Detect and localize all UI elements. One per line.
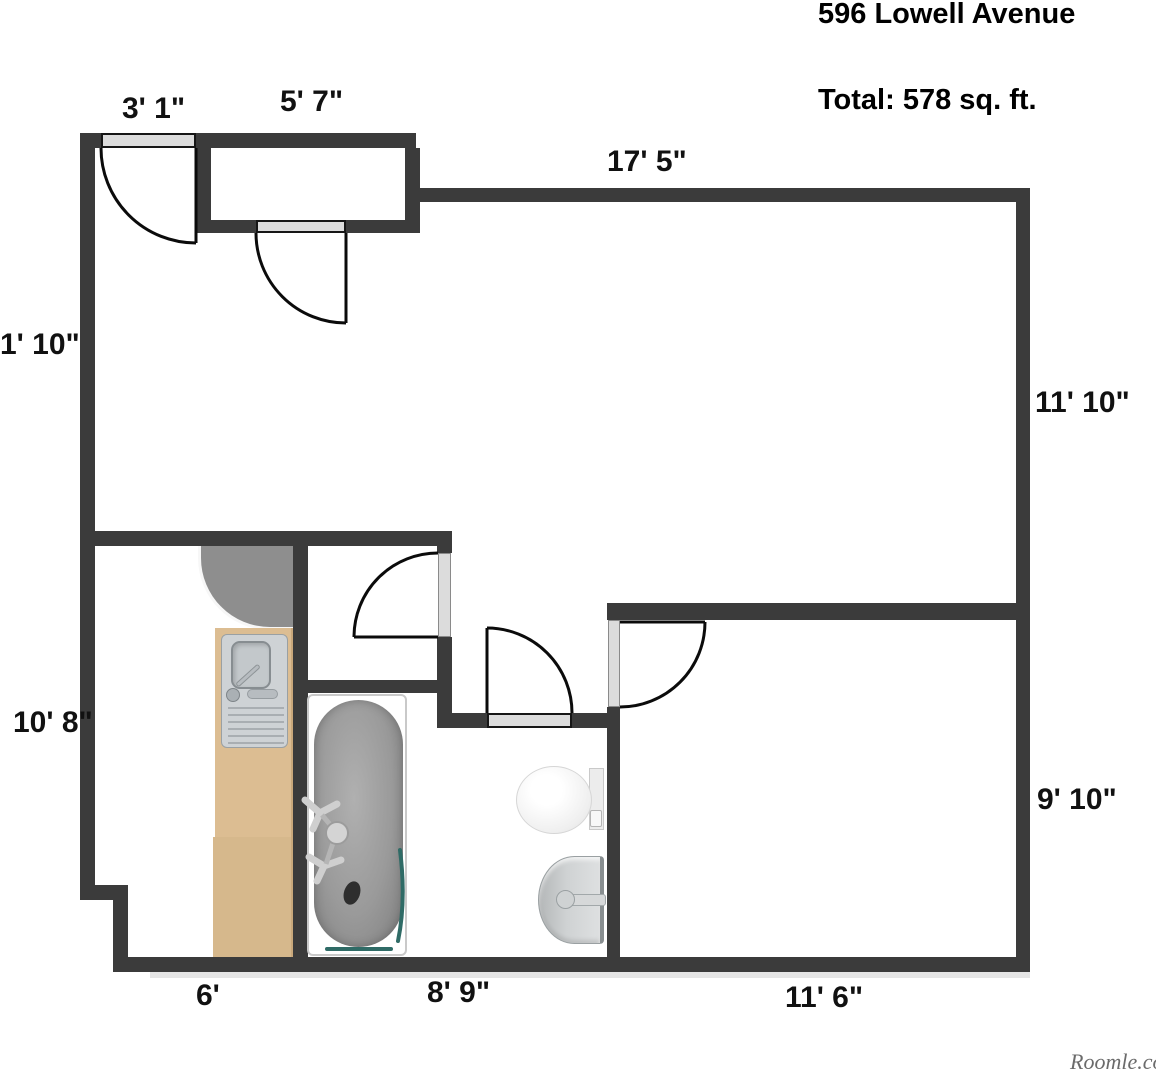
wall-left-jog-v	[113, 885, 128, 972]
entry-door-sill	[101, 133, 196, 148]
floor-plan: 596 Lowell Avenue Total: 578 sq. ft. 3' …	[0, 0, 1156, 1080]
wall-bath-top-a	[437, 713, 487, 728]
dim-entry-door: 3' 1"	[122, 92, 185, 126]
wall-bedroom-divider	[607, 603, 1030, 620]
dim-kitchen-left: 10' 8"	[13, 706, 93, 740]
hall-closet-sill	[438, 553, 451, 637]
bedroom-door	[620, 622, 705, 707]
dim-bedroom-right: 9' 10"	[1037, 783, 1117, 817]
wall-closet-bottom-a	[197, 220, 256, 233]
wall-kitchen-bath	[293, 546, 308, 957]
address-title: 596 Lowell Avenue	[818, 0, 1075, 31]
dim-bathroom-bottom: 8' 9"	[427, 976, 490, 1010]
bathtub	[314, 700, 403, 947]
dim-bedroom-bottom: 11' 6"	[785, 981, 863, 1015]
wall-bedroom-west	[607, 707, 620, 972]
bedroom-door-sill	[608, 620, 620, 707]
wall-top-closet	[196, 133, 416, 148]
closet-door	[256, 233, 346, 323]
wall-right	[1016, 188, 1030, 972]
wall-bottom	[113, 957, 1030, 972]
wall-tub-alcove	[300, 680, 440, 693]
dim-closet-width: 5' 7"	[280, 85, 343, 119]
entry-door	[101, 148, 196, 243]
closet-door-sill	[256, 220, 346, 233]
hall-closet-door	[354, 553, 438, 637]
toilet-bowl	[516, 766, 592, 834]
wall-top-main	[405, 188, 1030, 202]
dim-living-top: 17' 5"	[607, 145, 687, 179]
bathroom-faucet-knob	[556, 890, 575, 909]
wall-bath-top-b	[572, 713, 607, 728]
dim-kitchen-bottom: 6'	[196, 979, 220, 1013]
wall-left	[80, 133, 95, 900]
dim-living-right: 11' 10"	[1035, 386, 1130, 420]
bathroom-door	[487, 628, 572, 713]
wall-closet-bottom-b	[346, 220, 420, 233]
watermark: Roomle.com	[1070, 1049, 1156, 1075]
kitchen-drainboard	[228, 707, 284, 743]
kitchen-counter-wood-lower	[213, 837, 293, 957]
bathroom-door-sill	[487, 713, 572, 728]
toilet-flush-button	[590, 810, 602, 827]
dim-left-upper: 1' 10"	[0, 328, 80, 362]
kitchen-counter-corner	[198, 546, 293, 630]
wall-hall-door-top	[437, 531, 452, 553]
wall-middle	[80, 531, 452, 546]
kitchen-sink	[221, 634, 288, 748]
kitchen-soap-tray	[247, 689, 278, 699]
total-area: Total: 578 sq. ft.	[818, 84, 1037, 117]
kitchen-faucet-knob	[226, 688, 240, 702]
wall-bottom-shadow	[150, 972, 1030, 978]
